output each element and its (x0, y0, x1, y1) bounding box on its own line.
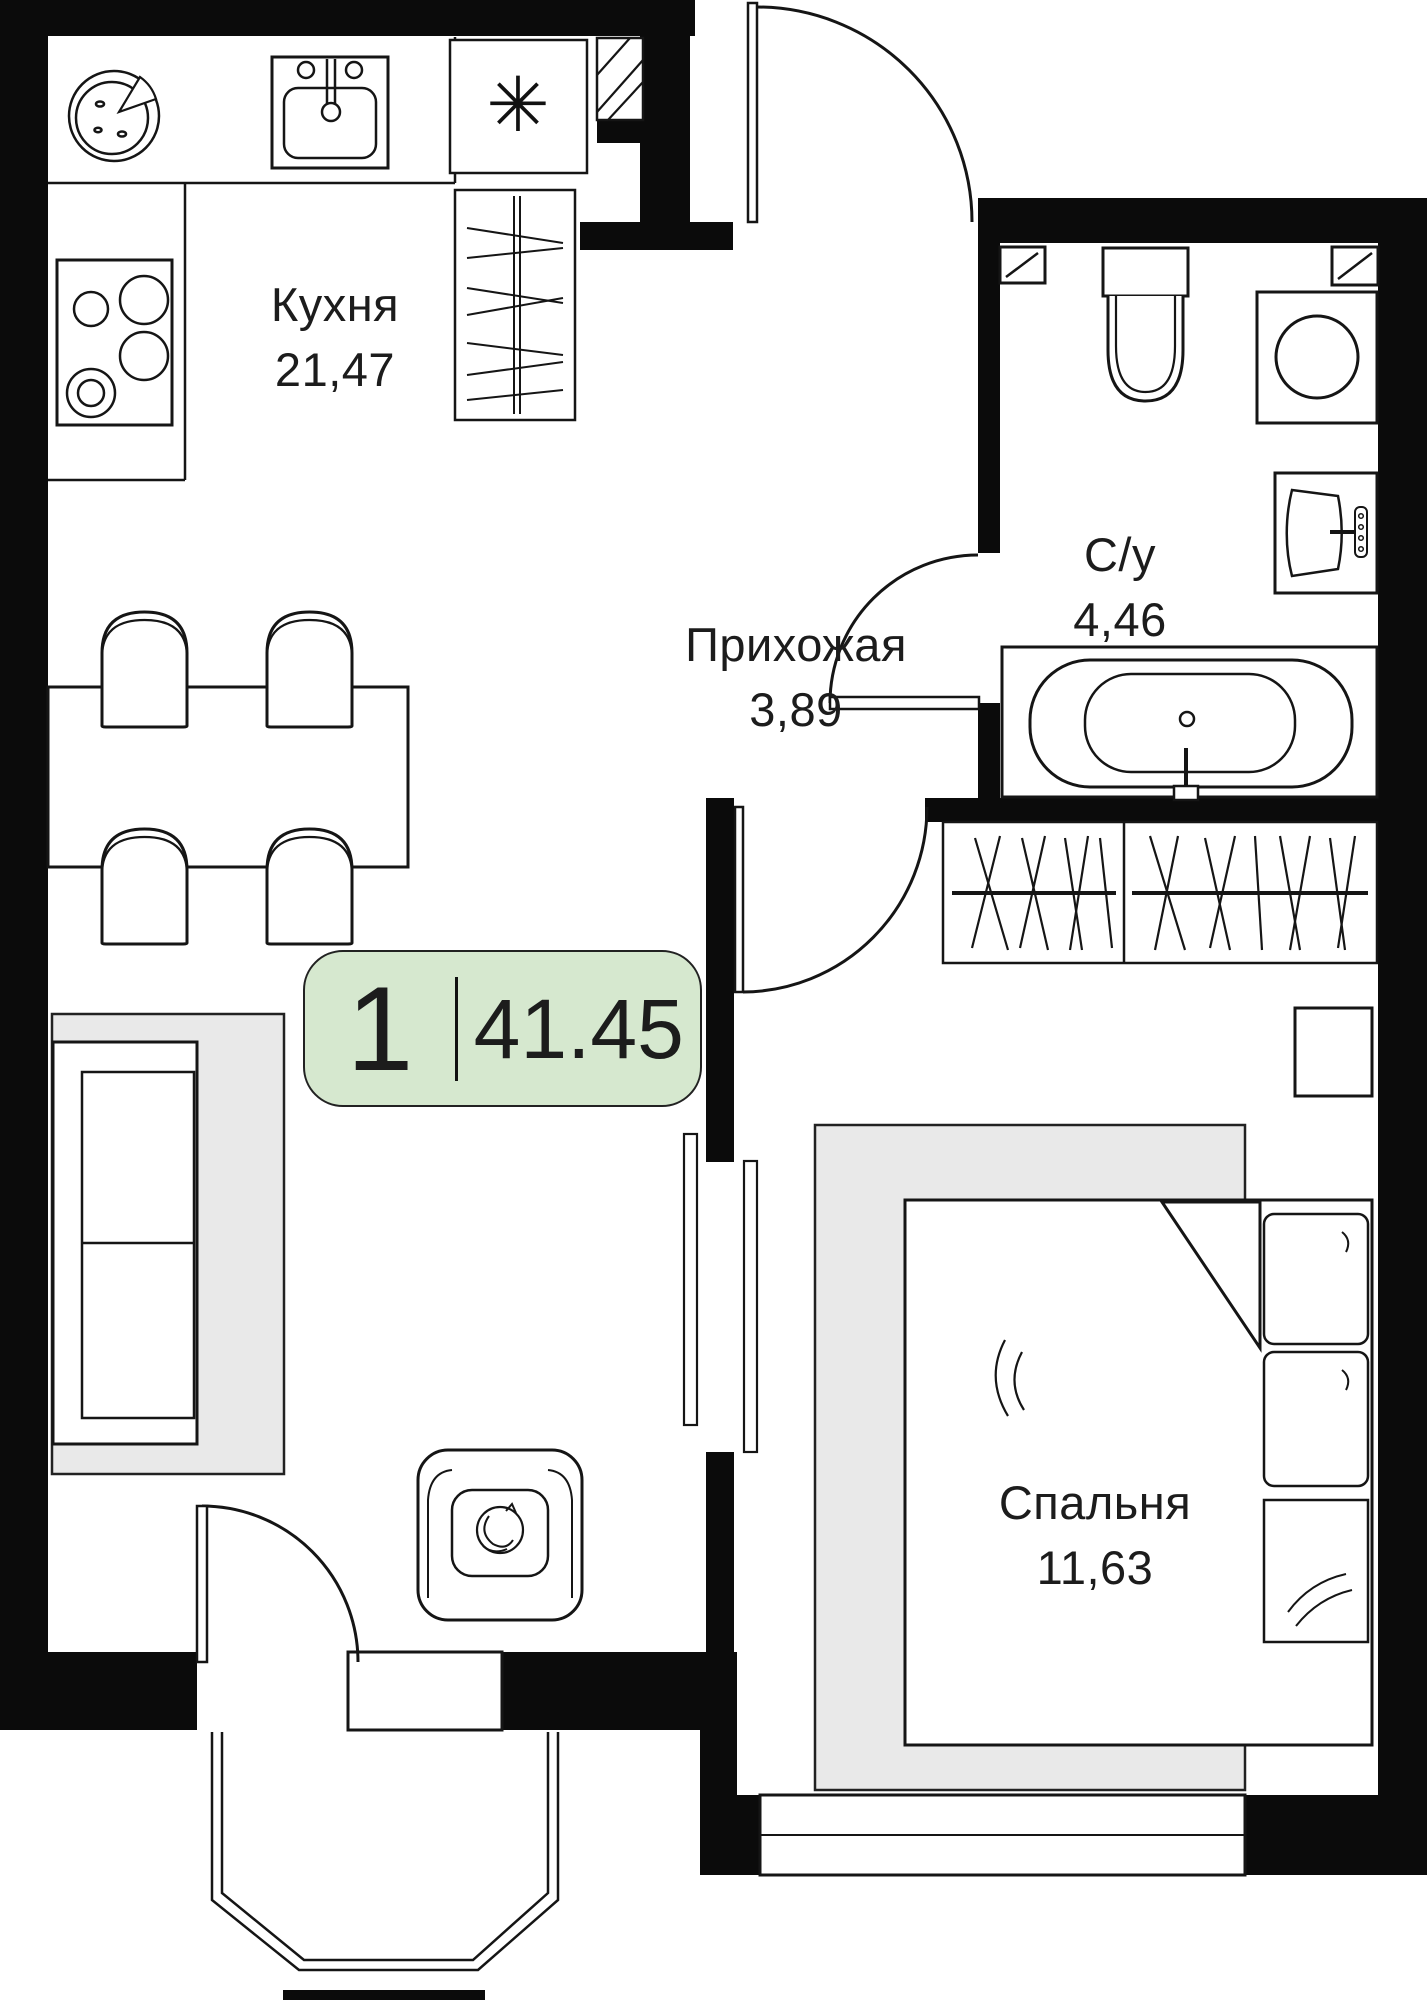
fridge-asterisk-icon: ✳ (486, 68, 550, 144)
bathroom-area: 4,46 (1073, 588, 1166, 653)
kitchen-sink (272, 57, 388, 168)
bedroom-label: Спальня 11,63 (999, 1471, 1191, 1601)
washing-machine (1257, 292, 1377, 423)
apartment-info-badge: 1 41.45 (303, 950, 702, 1107)
vent-marker-left (1000, 247, 1045, 283)
bathroom-name: С/у (1073, 523, 1166, 588)
entrance-door (748, 3, 972, 222)
bathroom-label: С/у 4,46 (1073, 523, 1166, 653)
vent-marker-right (1332, 247, 1378, 285)
nightstand (1295, 1008, 1372, 1096)
kitchen-label: Кухня 21,47 (271, 273, 399, 403)
armchair (418, 1450, 582, 1620)
bathroom-sink (1275, 473, 1377, 593)
bed-throw (1264, 1500, 1368, 1642)
apartment-floor-plan: ✳ Кухня 21,47 Прихожая 3,89 С/у 4,46 Спа… (0, 0, 1427, 2000)
bedroom-area: 11,63 (999, 1536, 1191, 1601)
vent-shaft-hatched (597, 38, 643, 120)
balcony-door (197, 1506, 358, 1662)
balcony (212, 1732, 558, 1970)
hallway-name: Прихожая (685, 613, 907, 678)
decor-plate-icon (69, 71, 159, 161)
bedroom-window (760, 1795, 1245, 1875)
bathtub (1002, 647, 1377, 800)
hallway-label: Прихожая 3,89 (685, 613, 907, 743)
badge-total-area: 41.45 (458, 987, 701, 1071)
living-window (348, 1652, 502, 1730)
hallway-closet (455, 190, 575, 420)
sofa (53, 1042, 197, 1444)
kitchen-name: Кухня (271, 273, 399, 338)
bedroom-door (735, 807, 927, 992)
badge-room-count: 1 (305, 969, 455, 1089)
toilet (1103, 248, 1188, 401)
stove (57, 260, 172, 425)
bedroom-name: Спальня (999, 1471, 1191, 1536)
floor-plan-svg (0, 0, 1427, 2000)
hallway-area: 3,89 (685, 678, 907, 743)
kitchen-area: 21,47 (271, 338, 399, 403)
sliding-door-panels (684, 1134, 757, 1452)
wardrobe (943, 822, 1377, 963)
